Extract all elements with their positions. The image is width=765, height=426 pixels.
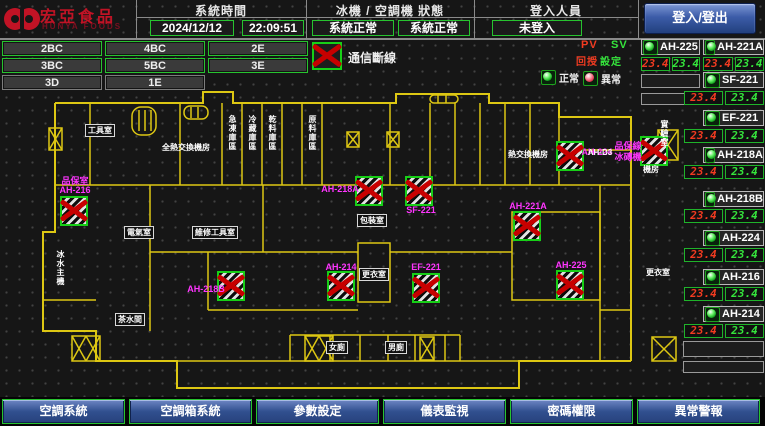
map-room-label: 男廁	[385, 341, 407, 354]
ac-status-value: 系統正常	[398, 20, 470, 36]
unit-name-label: AH-224	[722, 232, 760, 244]
unit-ah-224-tile[interactable]: AH-224	[703, 230, 764, 246]
unit-ah-218a-values: 23.423.4	[684, 165, 764, 179]
unit-sv-value: 23.4	[672, 57, 701, 71]
unit-name-label: AH-221A	[717, 41, 763, 53]
unit-ah-225-values: 23.423.4	[641, 57, 700, 71]
comm-loss-marker	[556, 270, 584, 300]
login-user-label: 登入人員	[474, 2, 638, 19]
map-room-label: 電氣室	[124, 226, 154, 239]
unit-sv-value: 23.4	[725, 324, 764, 338]
floor-button-4bc[interactable]: 4BC	[105, 41, 205, 56]
header-bar: 宏亞食品 HUNYA FOODS 系統時間 2024/12/12 22:09:5…	[0, 0, 765, 40]
map-unit-label: AH-218A	[321, 184, 359, 194]
map-room-label: 冰水主機	[56, 250, 65, 286]
floor-button-5bc[interactable]: 5BC	[105, 58, 205, 73]
normal-legend-label: 正常	[559, 70, 579, 85]
unit-led-icon	[705, 148, 715, 163]
unit-pv-value: 23.4	[641, 57, 670, 71]
comm-loss-legend-icon	[312, 42, 342, 70]
unit-sv-value: 23.4	[725, 209, 764, 223]
map-room-label: 原料庫區	[308, 115, 317, 151]
empty-unit-slot	[641, 74, 700, 88]
unit-name-label: SF-221	[722, 74, 758, 86]
normal-led-icon	[541, 70, 556, 85]
system-date-value: 2024/12/12	[150, 20, 234, 36]
abnormal-legend-label: 異常	[601, 71, 621, 86]
unit-name-label: AH-218B	[717, 193, 763, 205]
map-room-label: 冷藏庫區	[248, 115, 257, 151]
floor-button-3d[interactable]: 3D	[2, 75, 102, 90]
empty-unit-slot	[683, 341, 764, 357]
comm-loss-marker	[405, 176, 433, 206]
system-clock-value: 22:09:51	[242, 20, 304, 36]
unit-led-icon	[705, 111, 720, 126]
unit-ah-224-values: 23.423.4	[684, 248, 764, 262]
unit-pv-value: 23.4	[684, 248, 723, 262]
unit-ah-221a-values: 23.423.4	[703, 57, 764, 71]
unit-ah-218b-tile[interactable]: AH-218B	[703, 191, 764, 207]
unit-led-icon	[643, 40, 658, 55]
map-room-label: 更衣室	[359, 268, 389, 281]
map-unit-label: 冰磚機	[614, 150, 641, 163]
map-room-label: 更衣室	[646, 268, 670, 277]
unit-sv-value: 23.4	[725, 165, 764, 179]
map-room-label: 女廁	[326, 341, 348, 354]
map-room-label: 包裝室	[357, 214, 387, 227]
brand-name-en: HUNYA FOODS	[42, 22, 122, 31]
unit-pv-value: 23.4	[684, 209, 723, 223]
floor-button-1e[interactable]: 1E	[105, 75, 205, 90]
nav-alarm-button[interactable]: 異常警報	[637, 399, 760, 424]
unit-pv-value: 23.4	[684, 129, 723, 143]
comm-loss-marker	[513, 211, 541, 241]
map-room-label: 機房	[643, 165, 659, 174]
unit-name-label: AH-225	[660, 41, 698, 53]
floor-button-3e[interactable]: 3E	[208, 58, 308, 73]
floor-button-2e[interactable]: 2E	[208, 41, 308, 56]
comm-loss-marker	[556, 141, 584, 171]
unit-ah-221a-tile[interactable]: AH-221A	[703, 39, 764, 55]
unit-ef-221-tile[interactable]: EF-221	[703, 110, 764, 126]
unit-ah-214-tile[interactable]: AH-214	[703, 306, 764, 322]
unit-ah-216-values: 23.423.4	[684, 287, 764, 301]
comm-loss-legend-label: 通信斷線	[348, 49, 396, 66]
unit-pv-value: 23.4	[684, 324, 723, 338]
unit-led-icon	[705, 40, 715, 55]
unit-pv-value: 23.4	[703, 57, 733, 71]
map-room-label: 全熱交換機房	[162, 143, 210, 152]
map-room-label: 熱交換機房	[508, 150, 548, 159]
login-user-value: 未登入	[492, 20, 582, 36]
map-unit-label: AH-216	[59, 185, 90, 195]
hmi-screen: { "header": { "brand": "宏亞食品", "brand_en…	[0, 0, 765, 426]
unit-led-icon	[705, 307, 720, 322]
unit-ah-218a-tile[interactable]: AH-218A	[703, 147, 764, 163]
unit-ah-218b-values: 23.423.4	[684, 209, 764, 223]
map-room-label: AH-D3	[588, 148, 612, 157]
login-logout-button[interactable]: 登入/登出	[644, 3, 756, 34]
unit-pv-value: 23.4	[684, 287, 723, 301]
unit-sv-value: 23.4	[725, 91, 764, 105]
unit-led-icon	[705, 270, 720, 285]
map-room-label: 工具室	[85, 124, 115, 137]
abnormal-legend: 異常	[583, 71, 621, 86]
map-unit-label: AH-225	[555, 260, 586, 270]
floor-button-3bc[interactable]: 3BC	[2, 58, 102, 73]
chiller-status-value: 系統正常	[312, 20, 394, 36]
unit-led-icon	[705, 192, 715, 207]
unit-ah-216-tile[interactable]: AH-216	[703, 269, 764, 285]
abnormal-led-icon	[583, 71, 598, 86]
unit-sf-221-tile[interactable]: SF-221	[703, 72, 764, 88]
nav-parameter-set-button[interactable]: 參數設定	[256, 399, 379, 424]
unit-ah-214-values: 23.423.4	[684, 324, 764, 338]
machine-status-label: 冰機 / 空調機 狀態	[306, 2, 474, 19]
empty-unit-slot	[683, 361, 764, 373]
map-room-label: 乾料庫區	[268, 115, 277, 151]
floor-button-2bc[interactable]: 2BC	[2, 41, 102, 56]
unit-led-icon	[705, 73, 720, 88]
comm-loss-marker	[327, 271, 355, 301]
unit-ef-221-values: 23.423.4	[684, 129, 764, 143]
map-unit-label: AH-218B	[187, 284, 225, 294]
normal-legend: 正常	[541, 70, 579, 85]
map-unit-label: AH-214	[325, 262, 356, 272]
unit-name-label: AH-218A	[717, 149, 763, 161]
map-unit-label: AH-221A	[509, 201, 547, 211]
nav-ahu-system-button[interactable]: 空調箱系統	[129, 399, 252, 424]
unit-sf-221-values: 23.423.4	[684, 91, 764, 105]
sv-legend: SV	[611, 39, 628, 51]
pv-legend: PV	[581, 39, 598, 51]
nav-meter-monitor-button[interactable]: 儀表監視	[383, 399, 506, 424]
unit-sv-value: 23.4	[725, 129, 764, 143]
unit-sv-value: 23.4	[725, 287, 764, 301]
unit-name-label: EF-221	[722, 112, 758, 124]
comm-loss-marker	[60, 196, 88, 226]
bottom-nav-bar: 空調系統 空調箱系統 參數設定 儀表監視 密碼權限 異常警報	[0, 397, 765, 426]
unit-led-icon	[705, 231, 720, 246]
unit-ah-225-tile[interactable]: AH-225	[641, 39, 700, 55]
nav-ac-system-button[interactable]: 空調系統	[2, 399, 125, 424]
unit-pv-value: 23.4	[684, 91, 723, 105]
system-time-label: 系統時間	[136, 2, 306, 19]
map-unit-label: SF-221	[406, 205, 436, 215]
comm-loss-marker	[412, 273, 440, 303]
unit-name-label: AH-214	[722, 308, 760, 320]
map-room-label: 維修工具室	[192, 226, 238, 239]
unit-pv-value: 23.4	[684, 165, 723, 179]
pv-name-legend: 回授	[576, 53, 598, 68]
map-room-label: 實驗室	[660, 120, 669, 147]
map-unit-label: EF-221	[411, 262, 441, 272]
map-room-label: 急凍庫區	[228, 115, 237, 151]
nav-password-auth-button[interactable]: 密碼權限	[510, 399, 633, 424]
unit-sv-value: 23.4	[735, 57, 765, 71]
sv-name-legend: 設定	[600, 53, 622, 68]
map-room-label: 茶水間	[115, 313, 145, 326]
unit-name-label: AH-216	[722, 271, 760, 283]
brand-logo-icon	[2, 2, 40, 36]
unit-sv-value: 23.4	[725, 248, 764, 262]
